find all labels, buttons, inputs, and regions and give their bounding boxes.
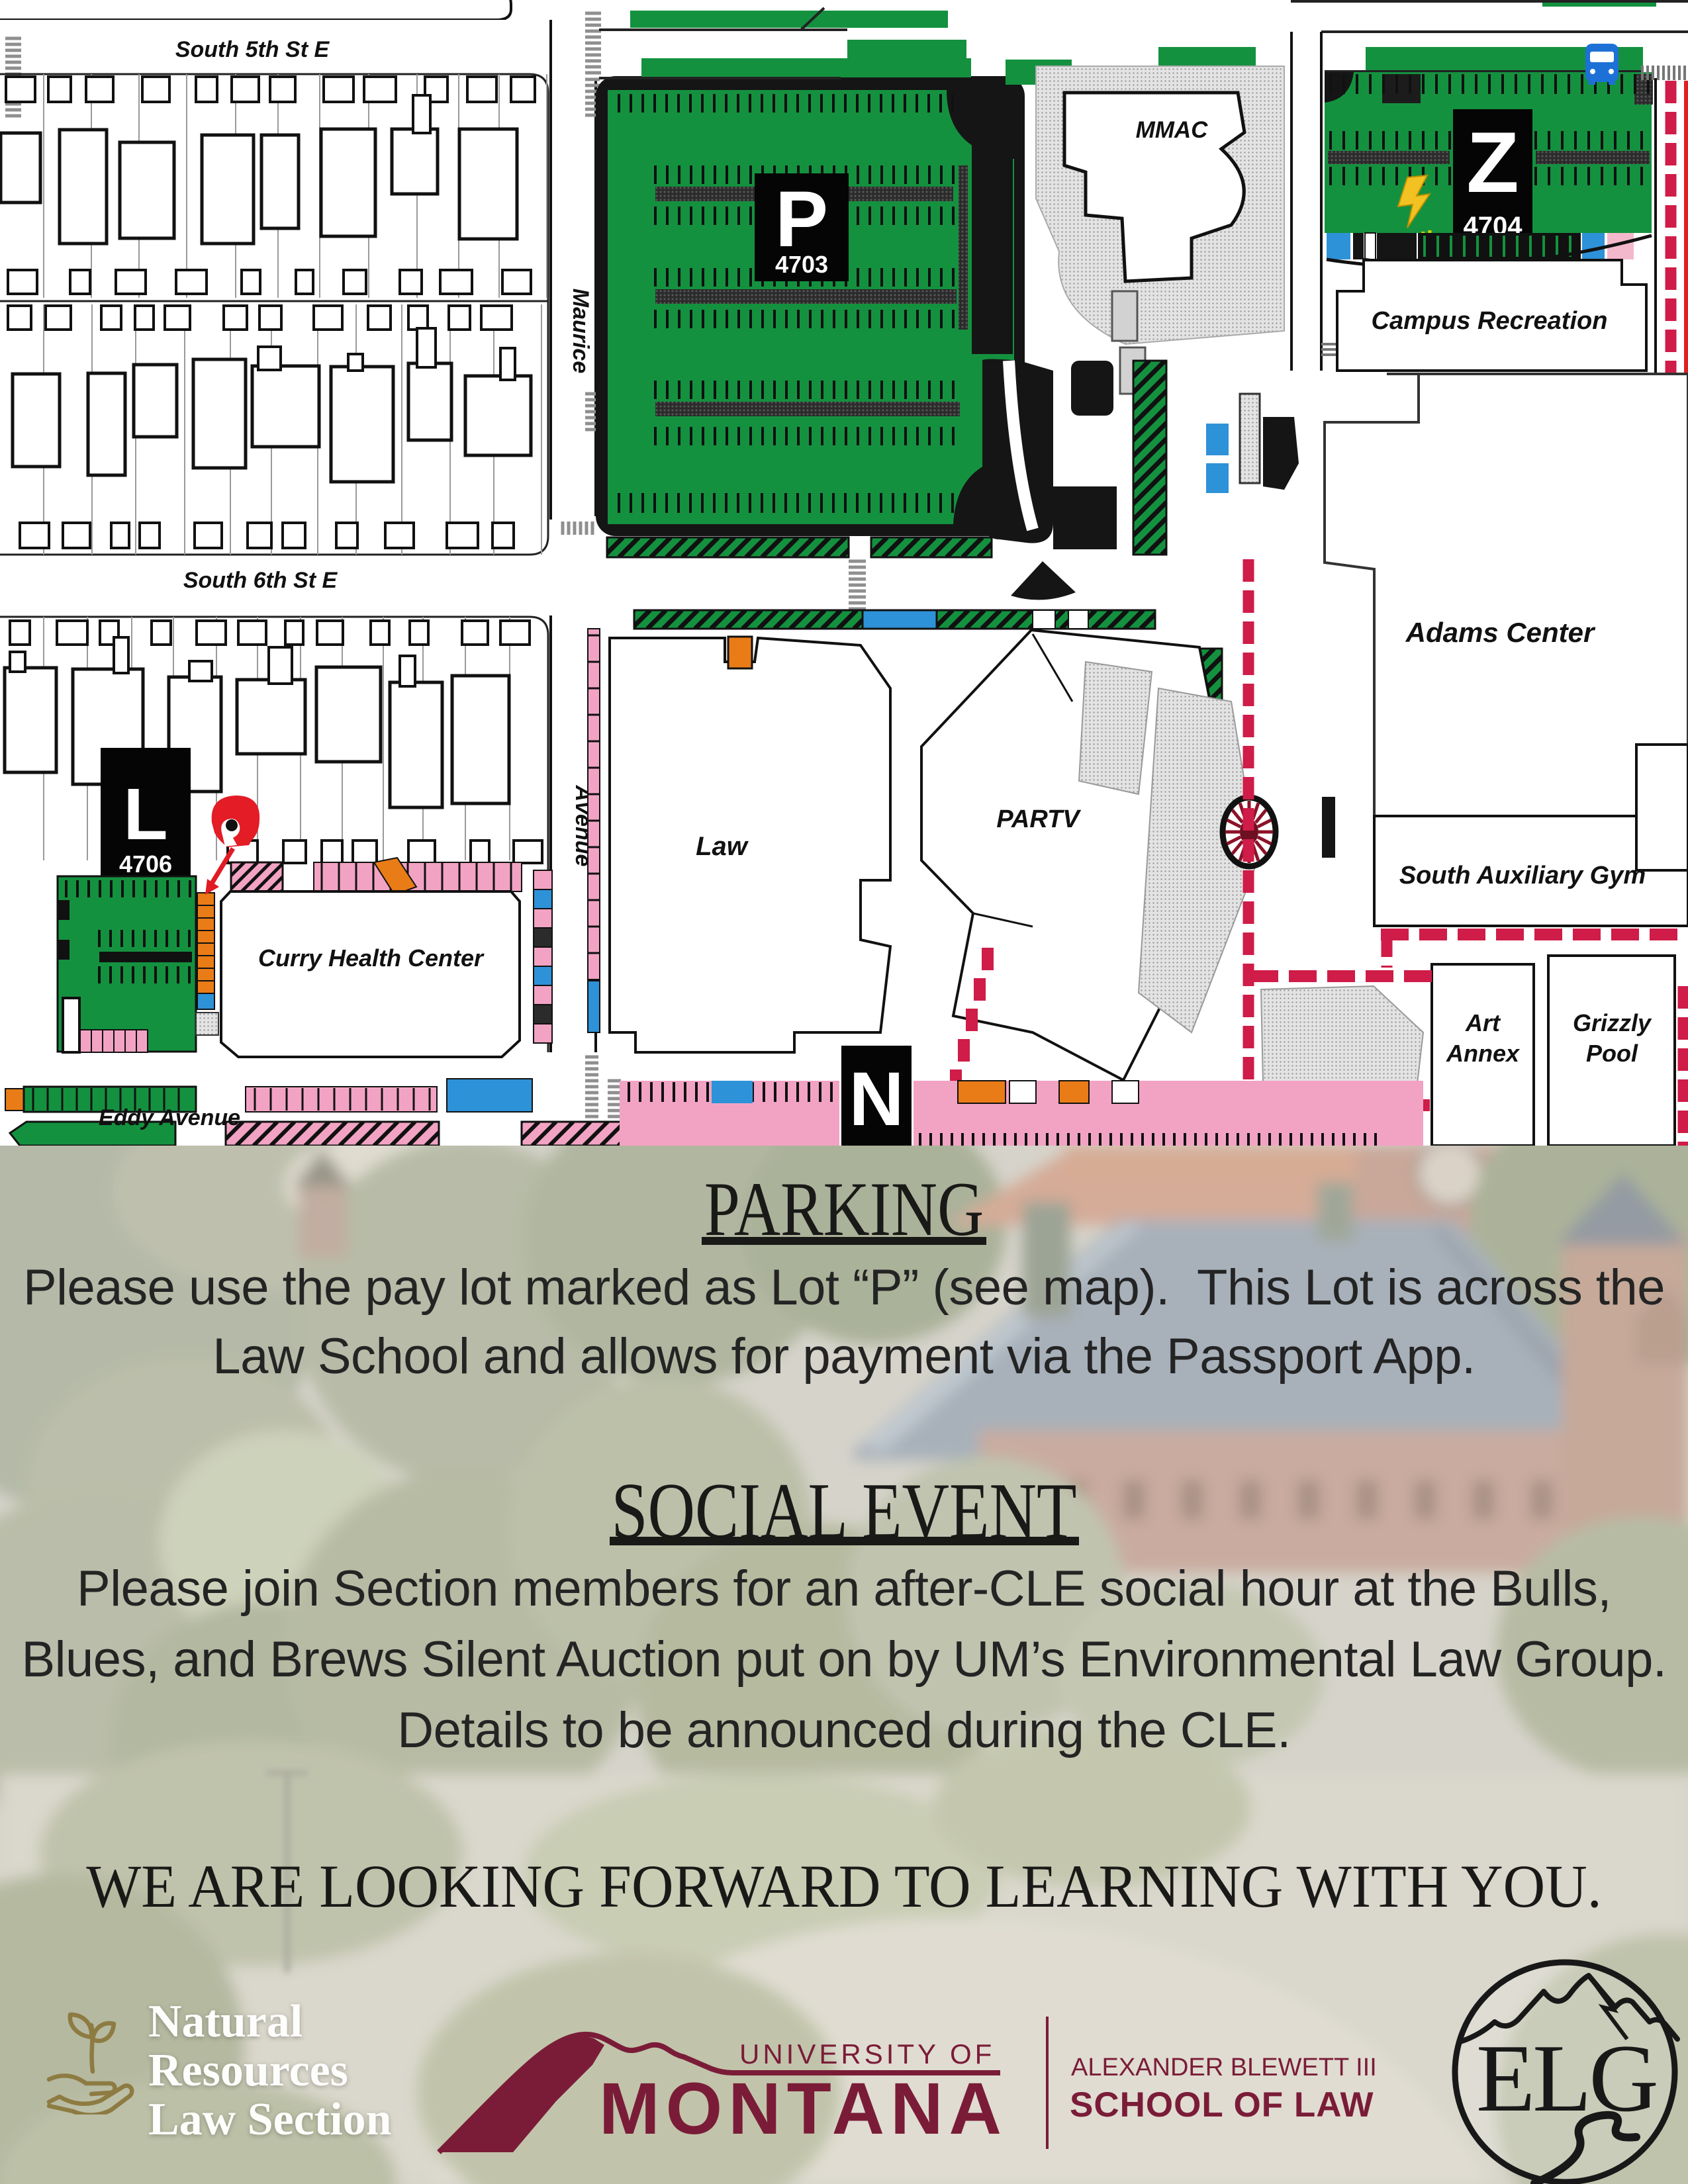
svg-text:Art: Art	[1465, 1009, 1501, 1036]
svg-text:South 5th St E: South 5th St E	[175, 37, 330, 62]
svg-text:Grizzly: Grizzly	[1573, 1009, 1652, 1036]
svg-text:ELG: ELG	[1476, 2025, 1656, 2132]
svg-text:4706: 4706	[119, 850, 172, 878]
svg-text:Campus Recreation: Campus Recreation	[1372, 307, 1608, 335]
svg-text:Law: Law	[696, 832, 749, 861]
svg-text:Adams Center: Adams Center	[1405, 617, 1596, 648]
svg-text:South 6th St E: South 6th St E	[183, 568, 338, 593]
svg-text:Curry Health Center: Curry Health Center	[258, 944, 485, 972]
svg-text:Pool: Pool	[1586, 1040, 1638, 1067]
svg-text:MONTANA: MONTANA	[599, 2068, 1008, 2150]
svg-text:Eddy Avenue: Eddy Avenue	[99, 1105, 240, 1130]
svg-text:South Auxiliary Gym: South Auxiliary Gym	[1399, 862, 1646, 889]
svg-text:PARTV: PARTV	[996, 805, 1081, 833]
svg-text:L: L	[123, 774, 167, 855]
svg-text:MMAC: MMAC	[1136, 117, 1209, 143]
svg-text:UNIVERSITY OF: UNIVERSITY OF	[739, 2038, 995, 2070]
svg-text:Annex: Annex	[1446, 1040, 1521, 1067]
svg-text:Maurice: Maurice	[568, 289, 593, 374]
svg-text:P: P	[775, 175, 828, 263]
svg-text:N: N	[849, 1057, 904, 1142]
svg-text:Z: Z	[1466, 114, 1519, 210]
svg-text:4703: 4703	[775, 251, 828, 278]
